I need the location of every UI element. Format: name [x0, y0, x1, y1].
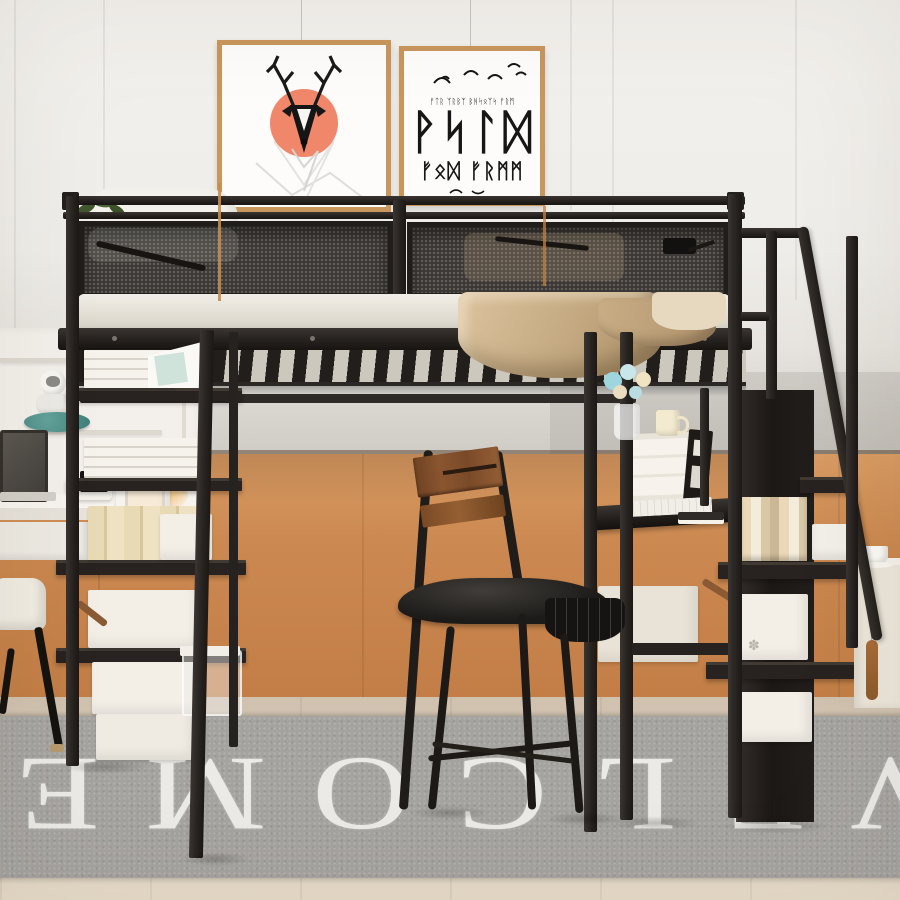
handrail-mid	[741, 312, 769, 321]
post-front-left-inner	[229, 332, 238, 747]
runes-bottom-line: ᚠᛟᛞ ᚠᚱᛗᛗ	[404, 159, 540, 183]
organizer-drawer	[630, 476, 689, 496]
floor-shadow	[610, 816, 700, 830]
floor-shadow	[180, 852, 250, 866]
left-shelf-3	[56, 560, 246, 575]
post-mid-under	[584, 332, 597, 832]
poster-wire	[470, 0, 471, 48]
left-shelf-2	[66, 478, 242, 491]
mug	[656, 410, 680, 436]
poster-deer	[217, 40, 391, 212]
guardrail-mesh-right	[407, 222, 729, 298]
handrail-far-post	[846, 236, 858, 648]
room-photo: WELCOME	[0, 0, 900, 900]
poster-wire	[301, 0, 302, 42]
blanket-beige-edge	[652, 292, 726, 330]
floor-box-2	[96, 714, 196, 760]
hanging-cord	[543, 206, 546, 286]
wall-seam	[570, 0, 572, 210]
pompom-vase	[614, 404, 640, 440]
wood-pendant	[866, 640, 878, 700]
crossbar-right	[632, 643, 736, 655]
floor-box-right	[736, 692, 812, 742]
file-paper	[154, 352, 188, 386]
chair-seat-skirt	[545, 598, 625, 642]
post-front-right	[728, 194, 742, 818]
left-shelf-1	[66, 388, 242, 401]
runes-large-line: ᚹᛋᛚᛞ	[404, 105, 540, 160]
box-logo: ✽	[748, 637, 760, 654]
post-back-left	[66, 196, 79, 766]
floor-shadow	[60, 760, 150, 774]
tower-white-box: ✽	[740, 594, 808, 660]
guardrail-mesh-left	[79, 221, 393, 298]
deer-artwork	[222, 45, 386, 207]
beam-bolt	[112, 336, 117, 341]
side-chair-cushion	[0, 578, 46, 630]
floor-shadow	[410, 806, 490, 820]
poster-runes: ᚠᛏᚱ ᛉᚱᛒᛉ ᛒᚻᛋᛟᛉᛋ ᚠᚱᛗ ᚹᛋᛚᛞ ᚠᛟᛞ ᚠᚱᛗᛗ	[399, 46, 545, 206]
white-books-shelf2	[84, 438, 204, 478]
pompom	[620, 364, 636, 380]
slat-gap-line	[443, 464, 497, 475]
laptop-base	[0, 492, 56, 501]
wall-seam	[795, 0, 797, 300]
pompom	[613, 385, 627, 399]
floor-shadow	[720, 818, 830, 834]
organizer-drawer	[630, 457, 689, 475]
beam-bolt	[310, 336, 315, 341]
teal-vase	[24, 412, 90, 432]
birds-icon	[416, 59, 536, 93]
pompom	[636, 372, 651, 387]
tower-books-row	[741, 497, 807, 561]
side-chair-foot	[50, 744, 64, 752]
hanging-cord	[218, 183, 221, 301]
organizer-drawer	[629, 438, 688, 456]
hutch-bar	[700, 388, 709, 506]
pompom	[629, 386, 642, 399]
notebook	[678, 512, 724, 524]
drawer-organizer	[626, 432, 692, 502]
